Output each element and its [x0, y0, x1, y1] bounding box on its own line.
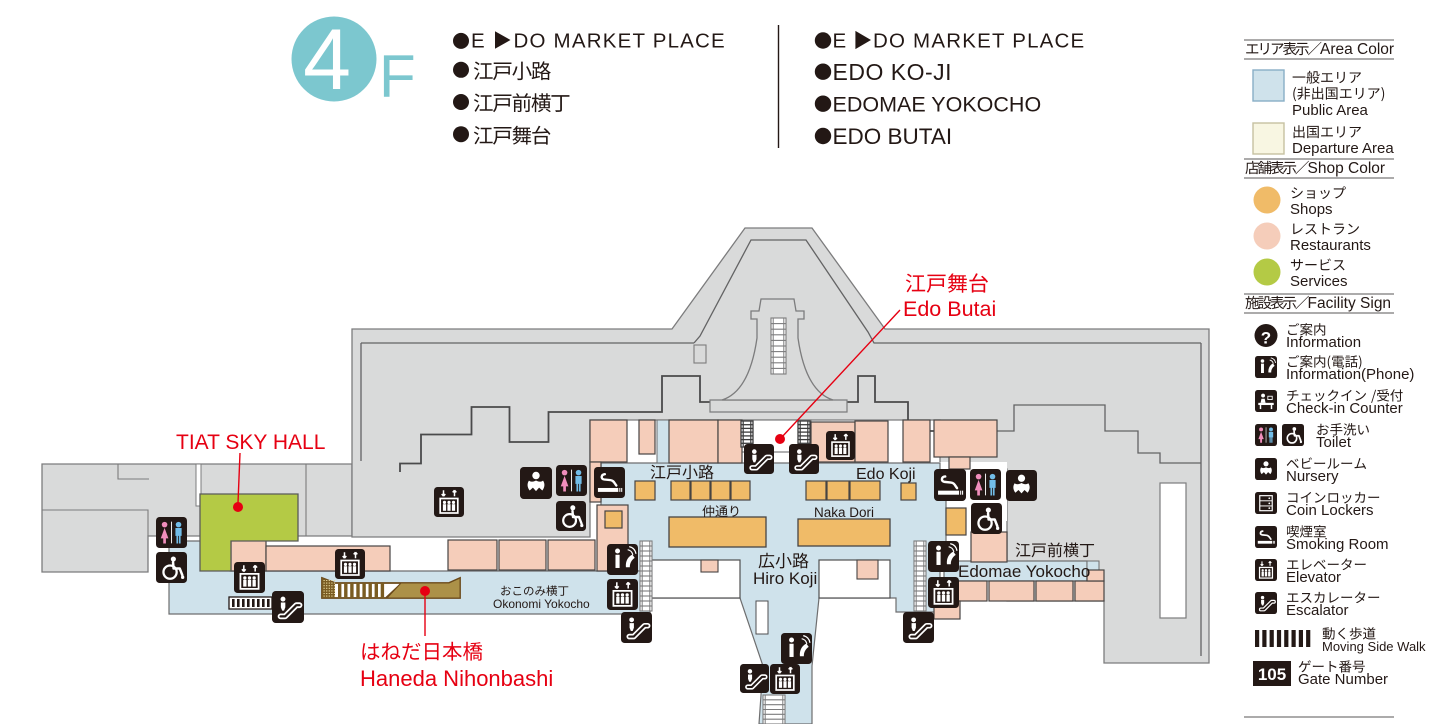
svg-text:Public Area: Public Area: [1292, 102, 1369, 119]
svg-text:Haneda Nihonbashi: Haneda Nihonbashi: [360, 666, 553, 691]
svg-text:Information(Phone): Information(Phone): [1286, 366, 1414, 383]
svg-text:Restaurants: Restaurants: [1290, 237, 1371, 254]
svg-text:Edo Butai: Edo Butai: [903, 297, 996, 321]
svg-text:4: 4: [303, 12, 351, 108]
svg-text:Smoking Room: Smoking Room: [1286, 536, 1389, 553]
svg-text:Elevator: Elevator: [1286, 569, 1341, 586]
svg-text:DO MARKET PLACE: DO MARKET PLACE: [514, 29, 726, 52]
svg-text:105: 105: [1258, 665, 1286, 684]
svg-text:Coin Lockers: Coin Lockers: [1286, 502, 1374, 519]
svg-text:E: E: [833, 30, 848, 53]
svg-text:F: F: [379, 43, 416, 110]
svg-text:Moving Side Walk: Moving Side Walk: [1322, 639, 1426, 654]
svg-text:Shop Color: Shop Color: [1308, 160, 1386, 177]
svg-text:Departure Area: Departure Area: [1292, 140, 1394, 157]
svg-text:Check-in Counter: Check-in Counter: [1286, 400, 1403, 417]
svg-text:Okonomi Yokocho: Okonomi Yokocho: [493, 597, 590, 611]
svg-text:EDO BUTAI: EDO BUTAI: [833, 124, 953, 149]
svg-text:Edomae Yokocho: Edomae Yokocho: [958, 562, 1090, 581]
svg-text:E: E: [471, 29, 486, 52]
svg-text:Shops: Shops: [1290, 201, 1333, 218]
svg-text:Nursery: Nursery: [1286, 468, 1339, 485]
svg-text:?: ?: [1261, 329, 1271, 348]
svg-text:Information: Information: [1286, 334, 1361, 351]
svg-text:Services: Services: [1290, 273, 1348, 290]
svg-text:EDO KO-JI: EDO KO-JI: [833, 59, 953, 85]
svg-text:Toilet: Toilet: [1316, 434, 1352, 451]
svg-text:Edo Koji: Edo Koji: [856, 466, 916, 483]
svg-text:Hiro Koji: Hiro Koji: [753, 569, 817, 588]
svg-text:Facility Sign: Facility Sign: [1308, 295, 1392, 312]
svg-text:EDOMAE YOKOCHO: EDOMAE YOKOCHO: [833, 93, 1042, 117]
svg-text:DO MARKET PLACE: DO MARKET PLACE: [873, 30, 1085, 53]
svg-text:Escalator: Escalator: [1286, 602, 1349, 619]
svg-text:Gate Number: Gate Number: [1298, 671, 1388, 688]
svg-text:Naka Dori: Naka Dori: [814, 505, 874, 520]
svg-text:TIAT SKY HALL: TIAT SKY HALL: [176, 431, 325, 454]
svg-text:Area Color: Area Color: [1320, 41, 1394, 58]
